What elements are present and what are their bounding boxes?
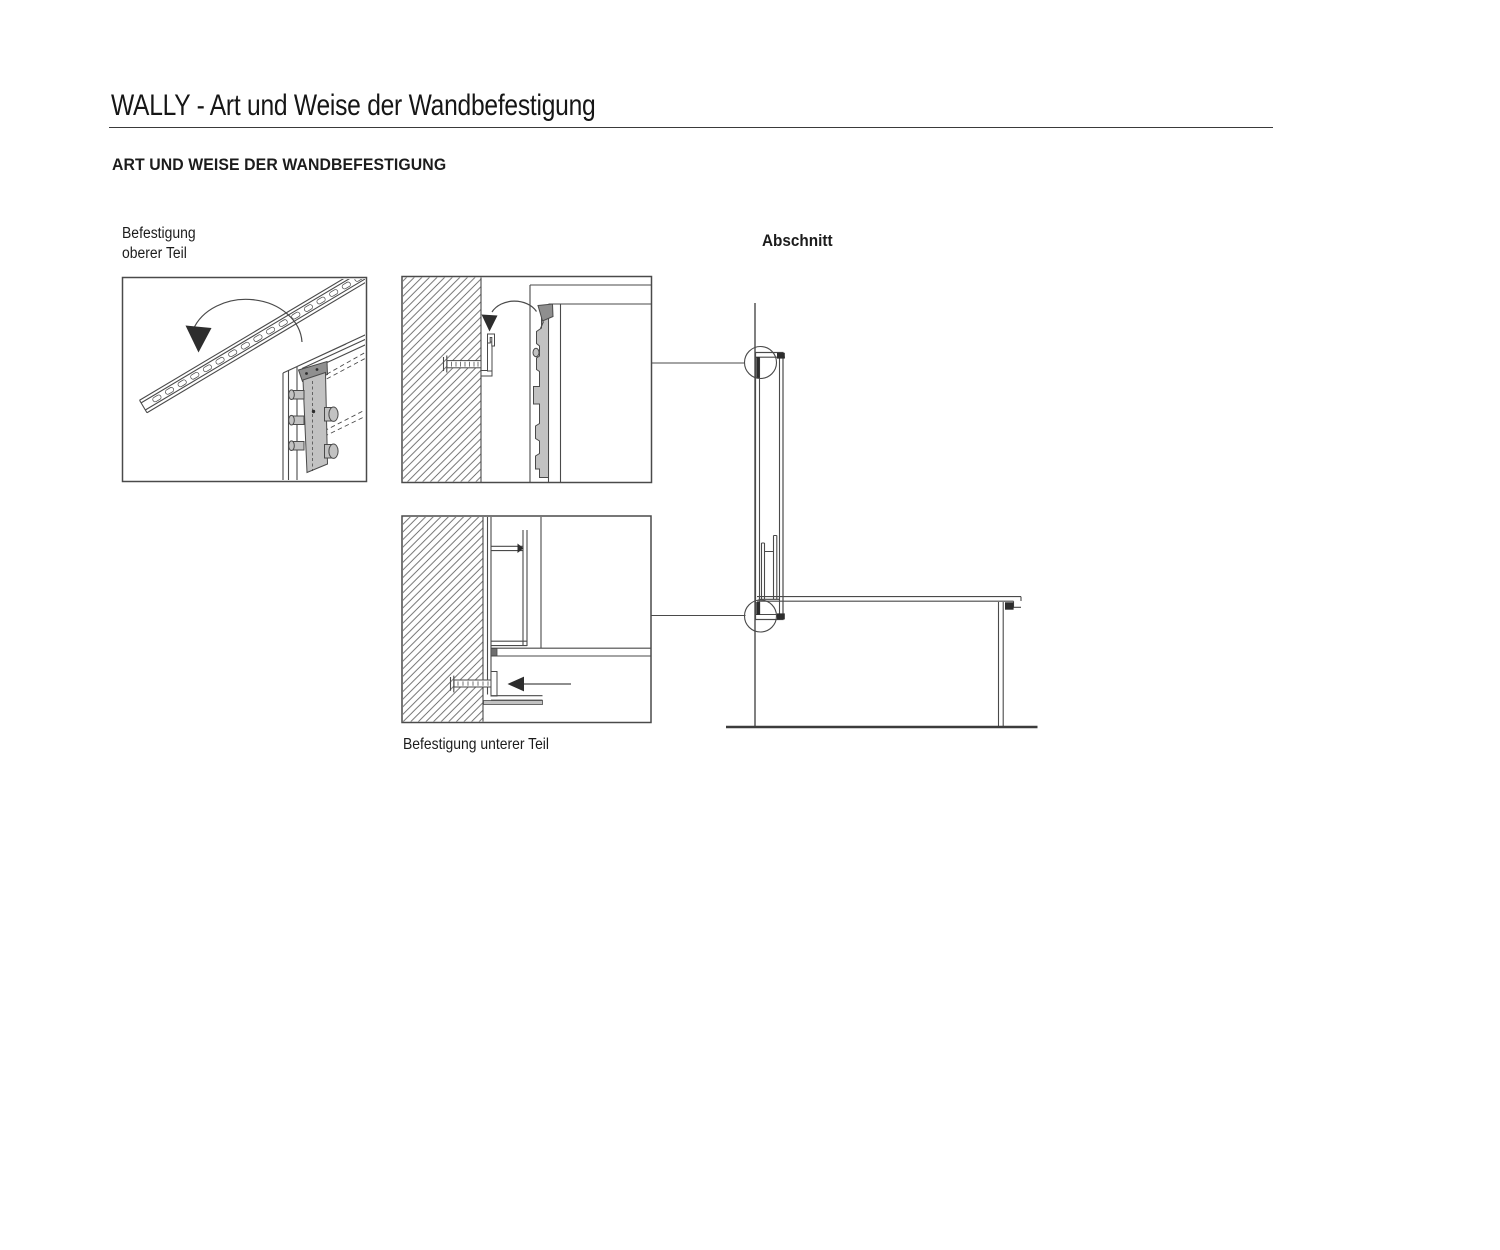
wall-panel-section bbox=[756, 353, 786, 620]
bottom-bracket bbox=[484, 672, 543, 705]
figure-section-view bbox=[651, 303, 1038, 727]
wall-hook-bracket bbox=[481, 334, 495, 376]
detail-circle-bottom bbox=[745, 600, 777, 632]
bottom-hook-detail bbox=[777, 613, 785, 619]
leader-lines bbox=[651, 363, 746, 616]
hanging-rail bbox=[523, 530, 527, 646]
figure-lower-detail bbox=[402, 516, 651, 723]
rail-slots bbox=[152, 274, 364, 403]
mounting-profile bbox=[534, 307, 549, 478]
panel-unit bbox=[530, 285, 652, 483]
bottom-shelf bbox=[491, 648, 651, 656]
hang-arrow-icon bbox=[482, 301, 537, 331]
wall-hatch bbox=[403, 278, 481, 482]
wall-bracket bbox=[289, 362, 338, 473]
mounting-rail bbox=[140, 264, 376, 413]
desk-bracket bbox=[1005, 602, 1014, 609]
figure-upper-fixing bbox=[123, 264, 376, 481]
rotate-arrow-icon bbox=[186, 299, 303, 352]
lower-rail-section bbox=[759, 536, 780, 600]
bracket-pins bbox=[289, 390, 304, 451]
figure-upper-detail bbox=[402, 277, 652, 483]
profile-top-cap bbox=[538, 304, 553, 321]
panel-section-lines bbox=[488, 517, 542, 695]
page: { "header": { "title": "WALLY - Art und … bbox=[0, 0, 1500, 1250]
technical-drawings bbox=[0, 0, 1500, 1250]
detail-circle-top bbox=[745, 347, 777, 379]
bracket-body bbox=[303, 373, 328, 473]
wall-hatch bbox=[403, 517, 483, 722]
desk-top bbox=[757, 597, 1021, 608]
desk-leg bbox=[999, 602, 1004, 726]
top-hook-detail bbox=[777, 353, 785, 359]
push-arrow-icon bbox=[508, 677, 572, 692]
desk-section bbox=[757, 597, 1021, 726]
